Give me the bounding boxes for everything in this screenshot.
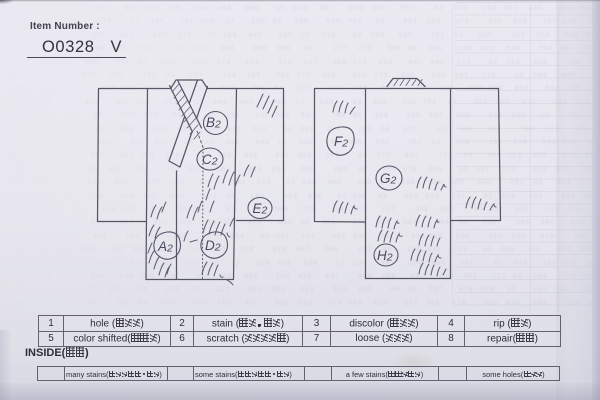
- svg-text:C2: C2: [202, 152, 218, 168]
- svg-text:A2: A2: [157, 239, 173, 255]
- svg-text:H2: H2: [377, 248, 393, 264]
- svg-text:F2: F2: [334, 134, 348, 150]
- svg-text:D2: D2: [205, 238, 221, 254]
- svg-text:B2: B2: [206, 115, 221, 131]
- svg-text:G2: G2: [380, 171, 397, 187]
- svg-text:E2: E2: [253, 201, 268, 217]
